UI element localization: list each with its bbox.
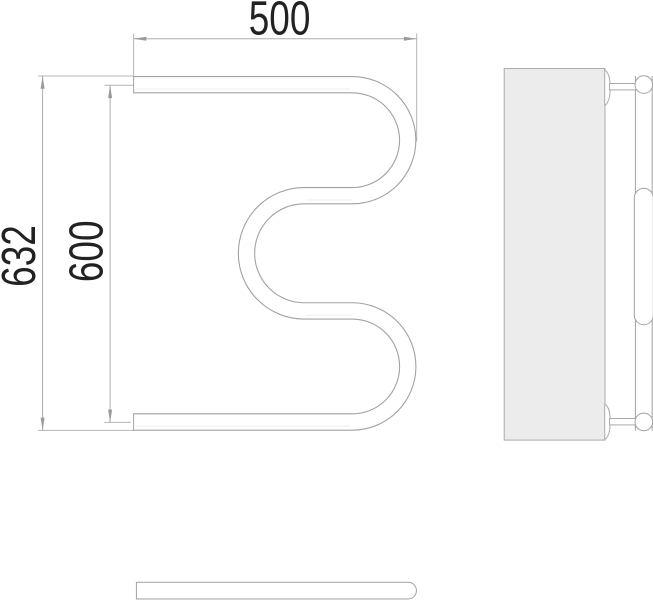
svg-text:600: 600 (60, 220, 114, 282)
svg-text:500: 500 (249, 0, 311, 46)
svg-text:632: 632 (0, 225, 46, 287)
